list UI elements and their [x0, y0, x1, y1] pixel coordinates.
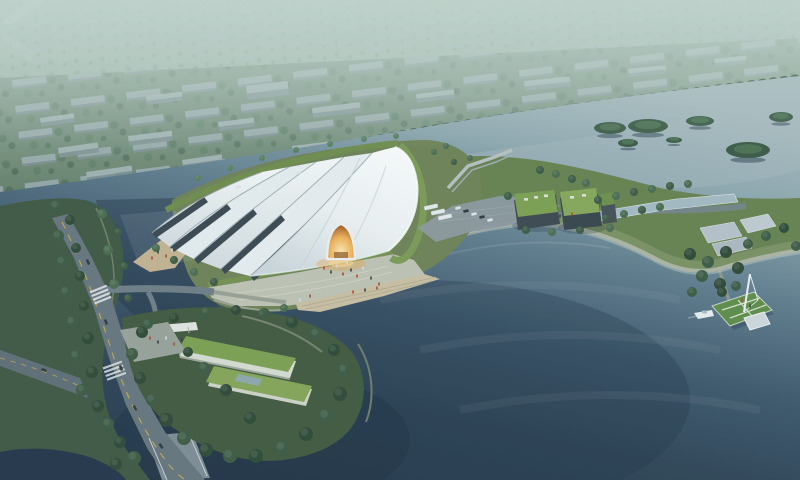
rendering-svg [0, 0, 800, 480]
global-tint [0, 0, 800, 480]
aerial-rendering [0, 0, 800, 480]
